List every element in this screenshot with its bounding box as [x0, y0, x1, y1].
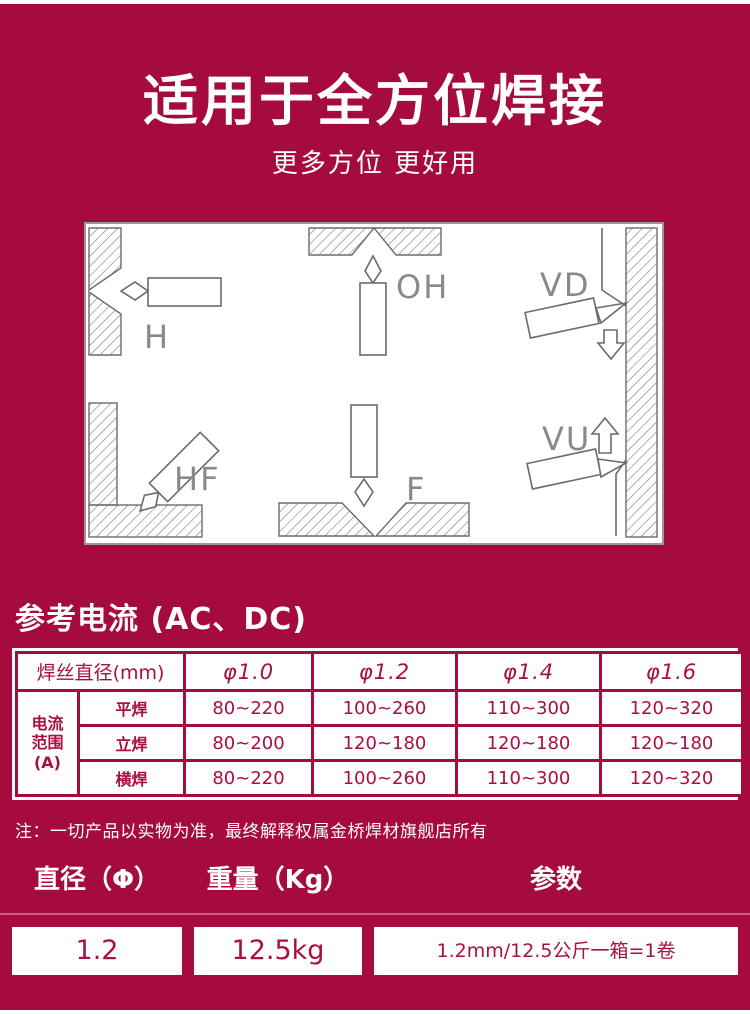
current-value-cell: 110~300: [457, 691, 601, 726]
current-value-cell: 120~180: [601, 726, 743, 761]
current-value-cell: 80~220: [185, 761, 313, 796]
spec-header-params: 参数: [374, 860, 738, 900]
h-electrode-tip: [121, 282, 148, 300]
vu-electrode-tip: [598, 459, 626, 477]
current-value-cell: 120~180: [313, 726, 457, 761]
oh-position-group: OH: [309, 228, 449, 355]
table-header-row: 焊丝直径(mm) φ1.0 φ1.2 φ1.4 φ1.6: [17, 653, 743, 691]
product-detail-page: 适用于全方位焊接 更多方位 更好用 H: [0, 0, 750, 1014]
page-subtitle: 更多方位 更好用: [0, 143, 750, 180]
oh-label: OH: [396, 268, 449, 306]
arrow-up-icon: [592, 418, 618, 453]
vu-label: VU: [542, 420, 591, 458]
oh-electrode-tip: [365, 256, 381, 283]
current-value-cell: 100~260: [313, 691, 457, 726]
oh-plate-left: [309, 228, 374, 255]
current-value-cell: 100~260: [313, 761, 457, 796]
bottom-white-strip: [0, 1010, 750, 1014]
welding-positions-diagram: H OH VD: [84, 222, 664, 545]
current-value-cell: 120~320: [601, 691, 743, 726]
range-line: (A): [18, 753, 77, 772]
weld-type-cell: 横焊: [79, 761, 185, 796]
h-label: H: [144, 318, 170, 356]
f-electrode-tip: [355, 479, 373, 506]
hf-wall-vertical: [89, 403, 117, 505]
current-value-cell: 80~200: [185, 726, 313, 761]
oh-plate-right: [374, 228, 441, 255]
h-position-group: H: [89, 228, 221, 356]
current-value-cell: 80~220: [185, 691, 313, 726]
hf-label: HF: [174, 460, 220, 498]
spec-header-diameter: 直径（Φ）: [12, 860, 182, 900]
h-electrode-body: [148, 278, 221, 306]
page-title: 适用于全方位焊接: [0, 56, 750, 136]
top-white-strip: [0, 0, 750, 4]
vu-position-group: VU: [527, 418, 626, 536]
vd-electrode-body: [525, 298, 599, 338]
diameter-cell: φ1.2: [313, 653, 457, 691]
range-line: 范围: [18, 733, 77, 752]
arrow-down-icon: [598, 330, 624, 359]
table-row: 横焊 80~220 100~260 110~300 120~320: [17, 761, 743, 796]
spec-headers-row: 直径（Φ） 重量（Kg） 参数: [12, 860, 738, 900]
right-wall: [626, 228, 657, 537]
spec-header-weight: 重量（Kg）: [194, 860, 362, 900]
current-value-cell: 120~320: [601, 761, 743, 796]
spec-value-weight: 12.5kg: [194, 927, 362, 975]
spec-divider: [0, 913, 750, 915]
diameter-cell: φ1.4: [457, 653, 601, 691]
diameter-cell: φ1.0: [185, 653, 313, 691]
weld-type-cell: 平焊: [79, 691, 185, 726]
diameter-cell: φ1.6: [601, 653, 743, 691]
current-value-cell: 110~300: [457, 761, 601, 796]
table-row: 立焊 80~200 120~180 120~180 120~180: [17, 726, 743, 761]
weld-type-cell: 立焊: [79, 726, 185, 761]
hf-position-group: HF: [89, 403, 220, 537]
vd-bevel-line: [602, 228, 626, 306]
h-wall-lower: [89, 292, 121, 355]
spec-value-params: 1.2mm/12.5公斤一箱=1卷: [374, 927, 738, 975]
vd-position-group: VD: [525, 228, 626, 359]
spec-values-row: 1.2 12.5kg 1.2mm/12.5公斤一箱=1卷: [12, 927, 738, 975]
f-position-group: F: [279, 405, 469, 536]
oh-electrode-body: [360, 283, 386, 355]
vd-label: VD: [540, 266, 591, 304]
current-value-cell: 120~180: [457, 726, 601, 761]
reference-current-heading: 参考电流 (AC、DC): [15, 594, 307, 638]
f-electrode-body: [351, 405, 377, 477]
diameter-header-cell: 焊丝直径(mm): [17, 653, 185, 691]
range-line: 电流: [18, 714, 77, 733]
welding-positions-svg: H OH VD: [84, 222, 664, 545]
current-range-cell: 电流 范围 (A): [17, 691, 79, 796]
table-row: 电流 范围 (A) 平焊 80~220 100~260 110~300 120~…: [17, 691, 743, 726]
h-wall-upper: [89, 228, 121, 290]
vd-electrode-tip: [596, 303, 626, 323]
vu-bevel-line: [616, 460, 626, 536]
f-plate-left: [279, 503, 374, 536]
disclaimer-note: 注：一切产品以实物为准，最终解释权属金桥焊材旗舰店所有: [15, 817, 488, 842]
f-label: F: [406, 470, 426, 508]
current-table: 焊丝直径(mm) φ1.0 φ1.2 φ1.4 φ1.6 电流 范围 (A) 平…: [12, 648, 738, 800]
spec-value-diameter: 1.2: [12, 927, 182, 975]
